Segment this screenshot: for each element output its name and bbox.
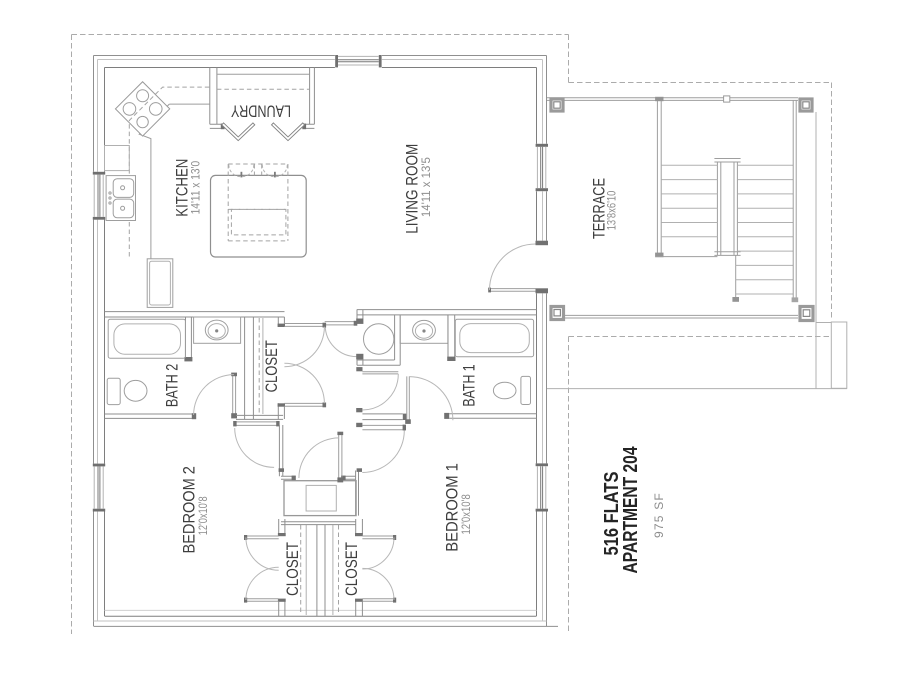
svg-text:APARTMENT 204: APARTMENT 204 (620, 446, 642, 574)
svg-text:14'11 x 13'5: 14'11 x 13'5 (419, 157, 433, 217)
svg-text:12'0x10'8: 12'0x10'8 (196, 496, 210, 535)
svg-text:CLOSET: CLOSET (283, 542, 302, 596)
svg-text:CLOSET: CLOSET (342, 542, 361, 596)
svg-text:LAUNDRY: LAUNDRY (231, 102, 291, 121)
svg-text:12'0x10'8: 12'0x10'8 (459, 494, 473, 535)
svg-text:13'8x6'10: 13'8x6'10 (604, 190, 618, 230)
svg-text:CLOSET: CLOSET (262, 340, 281, 392)
svg-text:14'11 x 13'0: 14'11 x 13'0 (189, 161, 203, 215)
svg-text:975 SF: 975 SF (652, 492, 666, 538)
svg-text:BATH 1: BATH 1 (459, 364, 478, 406)
svg-text:BATH 2: BATH 2 (162, 364, 181, 407)
